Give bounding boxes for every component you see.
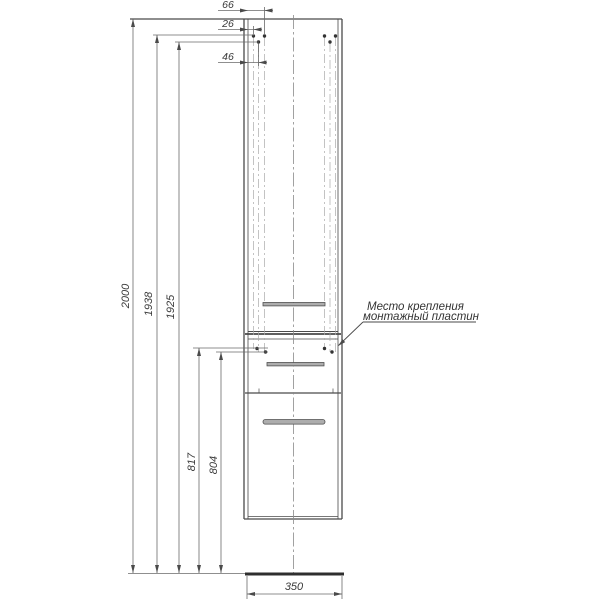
technical-drawing-page: 66 26 46 2000 1938 1925 817 804 [0, 0, 600, 600]
cabinet-outline [130, 19, 342, 519]
dim-66-label: 66 [222, 0, 234, 11]
dim-46-label: 46 [222, 51, 234, 63]
dim-2000-label: 2000 [120, 283, 132, 309]
dim-1938-label: 1938 [143, 291, 155, 316]
dim-26-label: 26 [221, 18, 234, 30]
drawer-handle [267, 363, 324, 366]
floor-line [128, 574, 344, 575]
dim-817-label: 817 [186, 452, 198, 471]
annotation-leader [338, 322, 476, 346]
dim-1925-label: 1925 [165, 294, 177, 319]
lower-door-handle [263, 420, 325, 425]
door-handles [263, 303, 325, 425]
dim-804-label: 804 [208, 456, 220, 474]
cabinet-dimension-drawing: 66 26 46 2000 1938 1925 817 804 [0, 0, 600, 600]
upper-door-handle [263, 303, 325, 306]
top-dimension-arrows [240, 9, 273, 65]
annotation-line2: монтажный пластин [363, 311, 480, 323]
dim-350-label: 350 [285, 581, 304, 593]
